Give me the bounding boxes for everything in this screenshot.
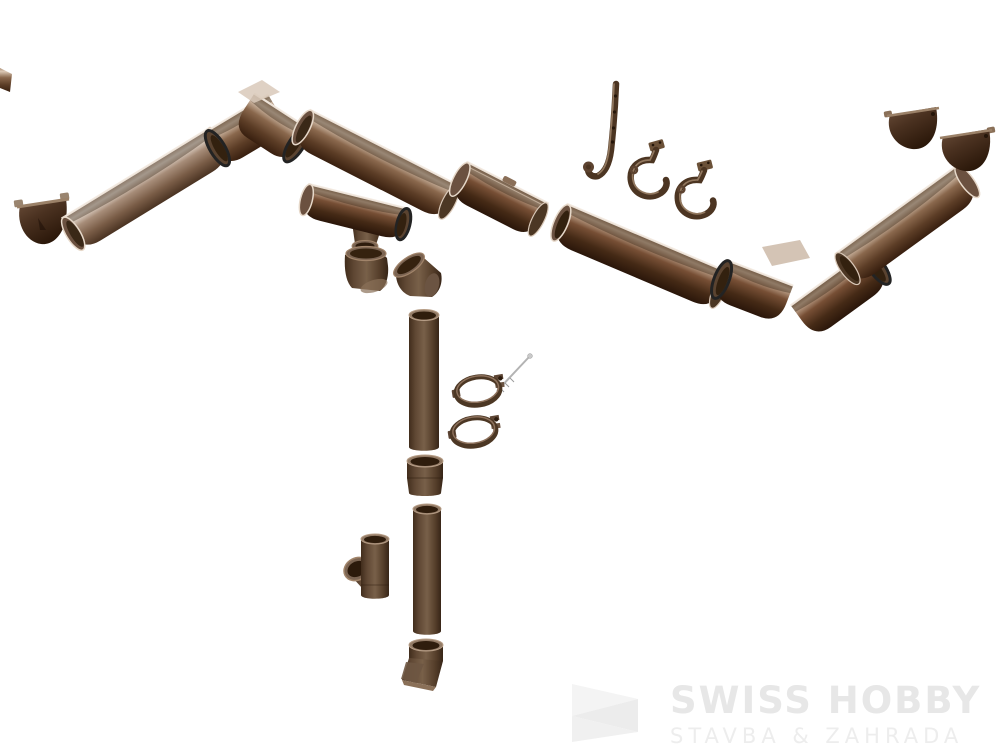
gutter-fragment-left-edge <box>0 68 12 92</box>
rafter-strap-hook <box>585 84 618 176</box>
gutter-end-cap-left <box>14 192 70 244</box>
pipe-elbow-left <box>345 247 389 297</box>
gutter-system-render <box>0 0 1000 750</box>
gutter-hook-1 <box>631 139 667 196</box>
brand-title: SWISS HOBBY <box>670 682 981 719</box>
downpipe-lower <box>413 504 441 635</box>
gutter-hook-2 <box>677 158 715 217</box>
gutter-connector <box>445 155 555 240</box>
product-image: SWISS HOBBY STAVBA & ZAHRADA <box>0 0 1000 750</box>
gutter-end-cap-right-2 <box>940 126 995 171</box>
brand-subtitle: STAVBA & ZAHRADA <box>670 724 981 748</box>
pipe-clamp-lower <box>446 413 503 450</box>
pipe-coupler <box>407 455 443 496</box>
pipe-clamp-upper <box>450 372 507 409</box>
pipe-tee <box>340 534 389 599</box>
swiss-hobby-logo-icon <box>570 682 642 744</box>
gutter-section-right <box>831 162 985 288</box>
downpipe-outlet-shoe <box>401 639 443 691</box>
pipe-elbow-right <box>390 249 442 299</box>
brand-watermark: SWISS HOBBY STAVBA & ZAHRADA <box>570 682 981 748</box>
gutter-end-cap-right-1 <box>884 107 939 149</box>
gutter-section-dark <box>546 202 733 312</box>
downpipe-upper <box>409 310 439 451</box>
